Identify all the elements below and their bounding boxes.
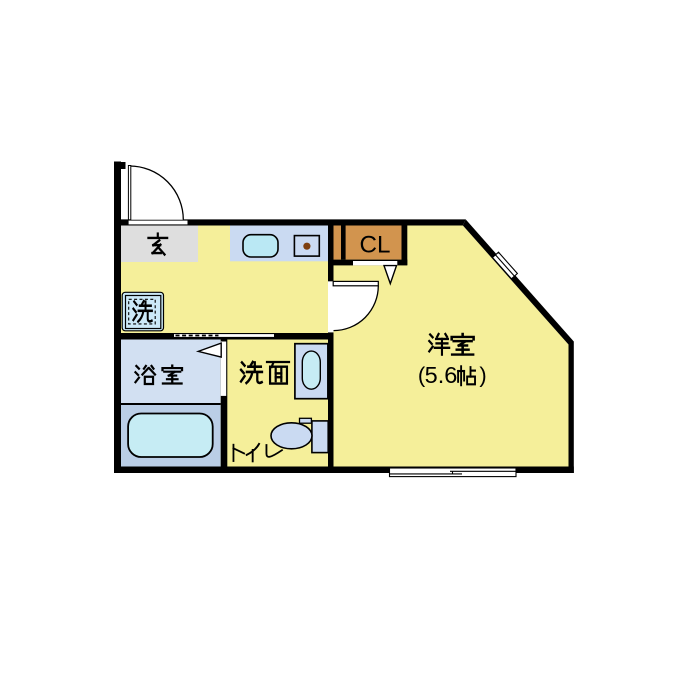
svg-text:5.6: 5.6 bbox=[425, 362, 458, 388]
svg-text:CL: CL bbox=[360, 231, 391, 258]
svg-text:): ) bbox=[479, 363, 486, 388]
